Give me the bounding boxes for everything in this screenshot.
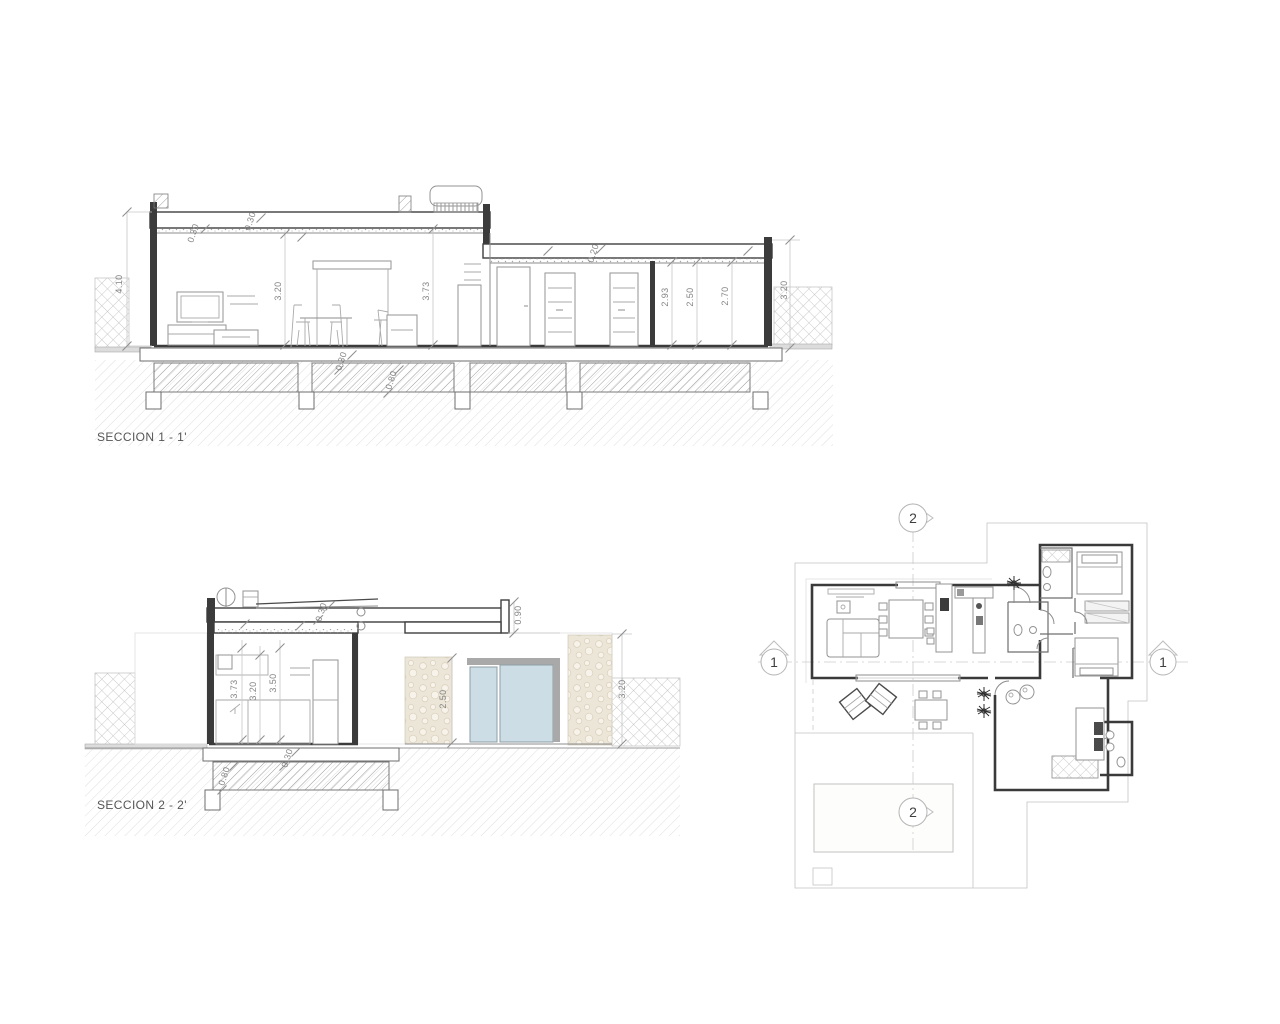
dim-s2-parapet: 0.90 (513, 605, 523, 624)
plan-marker-right-label: 1 (1159, 654, 1167, 670)
plan-marker-bottom-label: 2 (909, 804, 917, 820)
section-2-drawing: 0.30 0.90 3.73 3.20 3.50 2.50 3.20 0.30 … (85, 588, 680, 836)
architectural-sheet: 4.10 0.30 0.30 3.20 3.73 0.20 2.93 2.50 … (0, 0, 1280, 1024)
plan-terrace-furniture (840, 684, 1034, 729)
plan-marker-left: 1 (760, 641, 788, 675)
section1-dining-set (291, 261, 391, 347)
section1-cabinets (387, 264, 481, 346)
section2-label: SECCION 2 - 2' (97, 798, 187, 812)
dim-s1-ceiling-hall: 3.73 (421, 281, 431, 300)
section1-tv-unit (168, 292, 258, 345)
dim-s2-height-b: 3.20 (248, 681, 258, 700)
dim-s1-room-c: 2.70 (720, 286, 730, 305)
dim-s2-door-height: 2.50 (438, 689, 448, 708)
architectural-drawing-canvas: 4.10 0.30 0.30 3.20 3.73 0.20 2.93 2.50 … (0, 0, 1280, 1024)
section1-roof-ac-unit (399, 186, 482, 212)
section-1-drawing: 4.10 0.30 0.30 3.20 3.73 0.20 2.93 2.50 … (95, 186, 833, 446)
plan-bedrooms (1075, 552, 1122, 760)
plan-kitchen (927, 584, 993, 653)
dim-s2-height-right: 3.20 (617, 679, 627, 698)
dim-s1-height-left: 4.10 (114, 274, 124, 293)
dim-s1-room-a: 2.93 (660, 287, 670, 306)
section1-label: SECCION 1 - 1' (97, 430, 187, 444)
dim-s1-ceiling-living: 3.20 (273, 281, 283, 300)
section1-doors (497, 267, 638, 346)
plan-marker-right: 1 (1149, 641, 1177, 675)
floor-plan-drawing: 2 2 1 1 (758, 504, 1190, 888)
plan-marker-top-label: 2 (909, 510, 917, 526)
plan-marker-top: 2 (899, 504, 933, 532)
section2-structure (207, 598, 509, 744)
dim-s2-height-c: 3.50 (268, 673, 278, 692)
plan-marker-left-label: 1 (770, 654, 778, 670)
dim-s1-room-b: 2.50 (685, 287, 695, 306)
plan-living-furniture (827, 589, 933, 657)
dim-s2-height-a: 3.73 (229, 679, 239, 698)
section2-elevation (405, 635, 612, 745)
section2-roof-equipment (217, 588, 378, 608)
dim-s1-height-right: 3.20 (779, 280, 789, 299)
